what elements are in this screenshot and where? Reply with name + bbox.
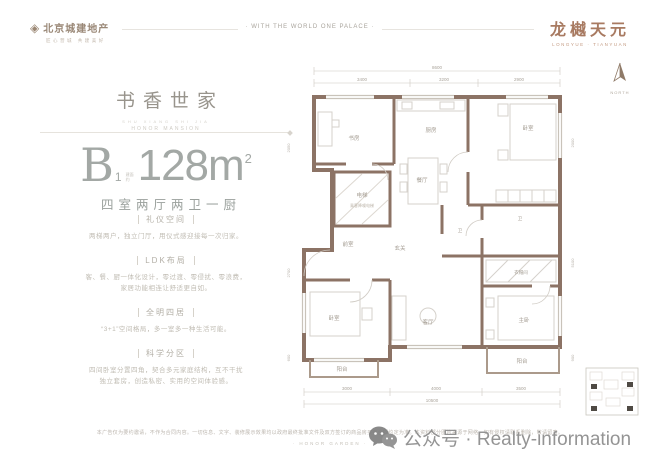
section-zoning: 科学分区 四间卧室分置四角，契合多元家庭结构，互不干扰 独立套房，创造私密、实用… (60, 348, 272, 387)
room-label-dining: 餐厅 (416, 176, 428, 184)
developer-logo: ◈ 北京城建地产 匠心营城 共建美好 (30, 20, 150, 44)
developer-tagline: 匠心营城 共建美好 (30, 38, 150, 44)
unit-info-panel: 书香世家 SHU XIANG SHI JIA HONOR MANSION (60, 86, 272, 132)
elevator-core: 电梯 乘客降噪电梯 (334, 172, 390, 226)
room-label-lobby: 前室 (342, 240, 354, 248)
section-title: 礼仪空间 (60, 214, 272, 225)
project-brand: 龙樾天元 LONGYUE · TIANYUAN (534, 16, 646, 47)
room-label-bath-right: 卫 (518, 216, 523, 221)
dim-left-1: 2050 (286, 143, 291, 153)
dim-left-2: 2700 (286, 268, 291, 278)
section-title: LDK布局 (60, 255, 272, 266)
room-label-balcony-right: 阳台 (516, 357, 528, 365)
dim-left-3: 600 (286, 354, 291, 361)
dim-right-3: 900 (570, 354, 575, 361)
unit-index: 1 (115, 170, 122, 184)
section-title: 科学分区 (60, 348, 272, 359)
project-name: 龙樾天元 (534, 16, 646, 40)
floorplan-poster: · WITH THE WORLD ONE PALACE · ◈ 北京城建地产 匠… (0, 0, 660, 467)
dim-bottom-seg2: 4000 (431, 386, 442, 391)
room-label-elevator-sub: 乘客降噪电梯 (350, 202, 374, 208)
room-label-study: 书房 (348, 134, 360, 142)
dim-top-seg3: 2900 (514, 77, 525, 82)
room-label-kitchen: 厨房 (425, 126, 437, 134)
wechat-icon (368, 425, 398, 451)
unit-area-row: B 1 建面 约 128m 2 (60, 144, 272, 186)
dim-bottom-total: 10500 (426, 398, 439, 403)
room-label-closet: 衣帽间 (514, 269, 528, 276)
unit-note-bottom: 约 (126, 177, 134, 182)
north-arrow: NORTH (608, 62, 632, 95)
section-text: 四间卧室分置四角，契合多元家庭结构，互不干扰 (60, 365, 272, 376)
panel-subtitle-pinyin: SHU XIANG SHI JIA (60, 119, 272, 124)
room-label-elevator: 电梯 (356, 191, 368, 199)
unit-layout: 四室两厅两卫一厨 (60, 194, 277, 213)
panel-divider (40, 132, 290, 133)
section-text: “3+1”空间格局，多一室多一种生活可能。 (60, 324, 272, 335)
room-label-balcony-left: 阳台 (336, 365, 348, 373)
room-label-bedroom-top: 卧室 (522, 124, 534, 132)
section-ldk-layout: LDK布局 客、餐、厨一体化设计，零过渡、零侵扰、零浪费， 家居功能相连让舒适更… (60, 255, 272, 294)
dim-top-seg1: 3400 (357, 77, 368, 82)
north-label: NORTH (608, 90, 632, 95)
project-name-sub: LONGYUE · TIANYUAN (534, 42, 646, 47)
developer-name: 北京城建地产 (43, 20, 109, 35)
dim-top-seg2: 3200 (439, 77, 450, 82)
unit-letter: B (80, 144, 114, 186)
section-text: 家居功能相连让舒适更自如。 (60, 283, 272, 294)
dim-right-2: 5100 (570, 258, 575, 268)
watermark-label: 公众号 · Realty-information (403, 424, 631, 451)
section-ritual-space: 礼仪空间 两梯两户，独立门厅，用仪式感迎接每一次归家。 (60, 214, 272, 242)
dim-top-total: 8600 (432, 65, 443, 70)
floor-plan: 8600 3400 3200 2900 3000 4000 3500 10500… (282, 58, 582, 430)
dim-bottom-seg3: 3500 (516, 386, 527, 391)
dim-bottom-seg1: 3000 (342, 386, 353, 391)
room-label-foyer: 玄关 (394, 244, 406, 252)
section-text: 客、餐、厨一体化设计，零过渡、零侵扰、零浪费， (60, 272, 272, 283)
dim-right-1: 2000 (570, 138, 575, 148)
section-text: 独立套房，创造私密、实用的空间体验感。 (60, 376, 272, 387)
room-label-bedroom-left: 卧室 (328, 314, 340, 322)
panel-title: 书香世家 (60, 86, 272, 113)
section-title: 全明四居 (60, 307, 272, 318)
unit-note: 建面 约 (126, 172, 134, 182)
room-label-master: 主卧 (518, 316, 530, 324)
section-text: 两梯两户，独立门厅，用仪式感迎接每一次归家。 (60, 231, 272, 242)
section-bright-rooms: 全明四居 “3+1”空间格局，多一室多一种生活可能。 (60, 307, 272, 335)
room-label-bath-center: 卫 (458, 228, 463, 233)
unit-area: 128m (138, 146, 244, 186)
diamond-logo-icon: ◈ (30, 22, 39, 34)
north-arrow-icon (610, 62, 630, 84)
selling-points: 礼仪空间 两梯两户，独立门厅，用仪式感迎接每一次归家。 LDK布局 客、餐、厨一… (60, 214, 272, 400)
watermark: 公众号 · Realty-information (368, 424, 631, 451)
key-plan (584, 366, 642, 418)
room-label-living: 客厅 (422, 318, 434, 326)
header-motto: · WITH THE WORLD ONE PALACE · (238, 24, 382, 30)
unit-area-sup: 2 (245, 151, 252, 166)
